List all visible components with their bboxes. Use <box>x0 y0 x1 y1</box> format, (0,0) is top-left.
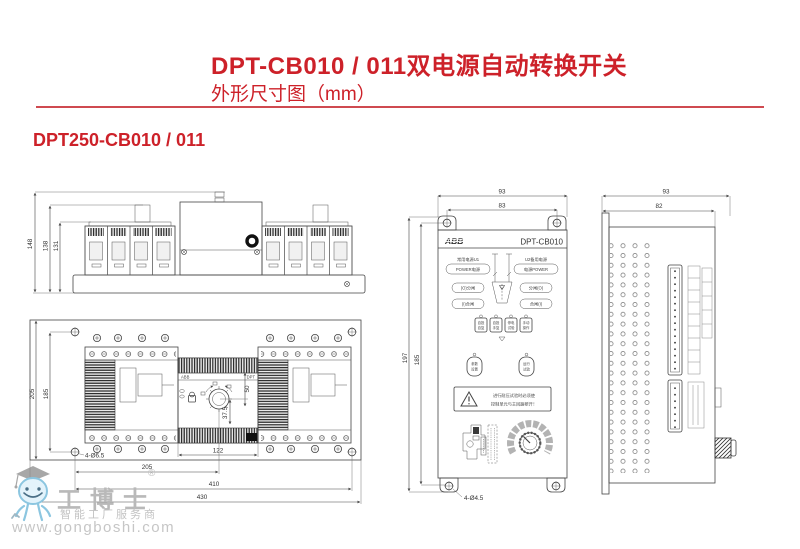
svg-text:手复: 手复 <box>493 325 500 330</box>
front-view-dimensions: 148 138 131 <box>27 192 225 293</box>
src-left-label: 常用电源U1 <box>457 256 480 263</box>
transfer-mechanism: ABB DPT <box>178 358 258 443</box>
dim-depth-mount: 185 <box>43 388 50 399</box>
ctrl-hole-callout: 4-Ø4.5 <box>464 495 484 502</box>
watermark-registered-mark: ® <box>148 468 155 479</box>
side-view-body <box>602 213 736 494</box>
dim-ctrl-height: 197 <box>402 352 409 363</box>
warning-line1: 进行耐压试验时必须使 <box>493 392 536 399</box>
front-view-drawing: 148 138 131 <box>25 188 375 310</box>
page-subtitle: 外形尺寸图（mm） <box>211 79 376 106</box>
dim-ctrl-mount-width: 83 <box>498 203 506 210</box>
close-left-label: (I)合闸 <box>462 301 474 308</box>
terminal-strip-upper <box>668 265 682 375</box>
breaker-group-left <box>85 205 175 275</box>
top-breaker-right <box>258 334 351 452</box>
breaker-group-right <box>262 205 352 275</box>
rotary-dial <box>511 424 550 454</box>
dim-side-overall: 93 <box>662 189 670 196</box>
svg-text:操作: 操作 <box>523 325 530 330</box>
mascot-logo-icon <box>10 462 56 524</box>
top-breaker-left <box>85 334 178 452</box>
side-view-drawing: 93 82 <box>595 186 745 516</box>
dim-height-mid: 138 <box>43 240 50 251</box>
cable-connector <box>715 438 736 458</box>
model-heading: DPT250-CB010 / 011 <box>33 130 205 151</box>
svg-text:手动: 手动 <box>523 320 530 325</box>
terminal-labels <box>688 266 712 428</box>
top-view-dimensions: 205 185 122 4-Ø6.5 205 410 430 <box>29 321 361 504</box>
dim-handle-offset: 37.5 <box>222 406 229 419</box>
page-title: DPT-CB010 / 011双电源自动转换开关 <box>211 46 627 81</box>
controller-panel-drawing: 93 83 197 185 ABB <box>400 186 585 516</box>
model-label: DPT-CB010 <box>520 238 563 247</box>
function-buttons: 参数 设置 运行 试验 <box>467 353 534 376</box>
supply-symbols <box>492 254 512 282</box>
terminal-strip-lower <box>668 380 682 432</box>
svg-text:参数: 参数 <box>471 361 478 366</box>
dim-height-inner: 131 <box>53 240 60 251</box>
power-left-label: POWER电源 <box>456 266 481 273</box>
warning-line2: 控制单元与主回路断开！ <box>491 401 537 408</box>
svg-text:试验: 试验 <box>508 325 515 330</box>
dim-ctrl-width: 93 <box>498 189 506 196</box>
open-right-label: 分闸(O) <box>529 285 544 292</box>
dim-mech-width: 122 <box>213 448 224 455</box>
dpt-label: DPT <box>247 375 256 380</box>
front-view-body <box>73 192 365 293</box>
dim-height-overall: 148 <box>27 238 34 249</box>
dim-side-inner: 82 <box>655 203 663 210</box>
abb-logo: ABB <box>444 236 463 246</box>
svg-text:自投: 自投 <box>478 320 485 325</box>
svg-text:试验: 试验 <box>523 367 530 372</box>
open-left-label: (O)分闸 <box>461 285 475 292</box>
svg-text:自投: 自投 <box>493 320 500 325</box>
vent-holes <box>610 241 656 473</box>
dim-depth-overall: 205 <box>29 388 36 399</box>
title-divider <box>36 106 764 108</box>
warning-box: 进行耐压试验时必须使 控制单元与主回路断开！ <box>454 387 551 411</box>
watermark-url: www.gongboshi.com <box>12 519 175 536</box>
warning-triangle-icon <box>461 392 477 406</box>
padlock-icon <box>180 390 196 403</box>
dim-mount-width: 410 <box>209 481 220 488</box>
down-arrow-mark <box>499 337 505 341</box>
dim-overall-width: 430 <box>197 494 208 501</box>
svg-text:设置: 设置 <box>471 367 478 372</box>
controller-body: ABB DPT-CB010 常用电源U1 U2备用电源 POWER电源 电源PO… <box>438 216 567 502</box>
abb-logo-mechanism: ABB <box>181 375 190 380</box>
svg-text:停电: 停电 <box>508 320 515 325</box>
power-right-label: 电源POWER <box>524 266 548 273</box>
close-right-label: 合闸(I) <box>530 301 543 308</box>
page: DPT-CB010 / 011双电源自动转换开关 外形尺寸图（mm） DPT25… <box>0 0 800 549</box>
controller-dimensions: 93 83 197 185 <box>402 189 567 493</box>
transfer-symbol <box>492 282 512 303</box>
dim-handle-height: 50 <box>244 385 251 393</box>
svg-text:运行: 运行 <box>523 361 530 366</box>
plug-symbol <box>463 425 497 463</box>
svg-text:自复: 自复 <box>478 325 485 330</box>
dim-ctrl-mount-height: 185 <box>414 354 421 365</box>
svg-text:ABB: ABB <box>444 236 463 246</box>
mounting-hole-callout: 4-Ø6.5 <box>85 453 105 460</box>
side-view-dimensions: 93 82 <box>602 189 730 228</box>
padlock-hole <box>247 236 257 246</box>
src-right-label: U2备用电源 <box>525 256 548 263</box>
mode-buttons: 自投 自复 自投 手复 停电 试验 手动 操作 <box>475 315 532 332</box>
